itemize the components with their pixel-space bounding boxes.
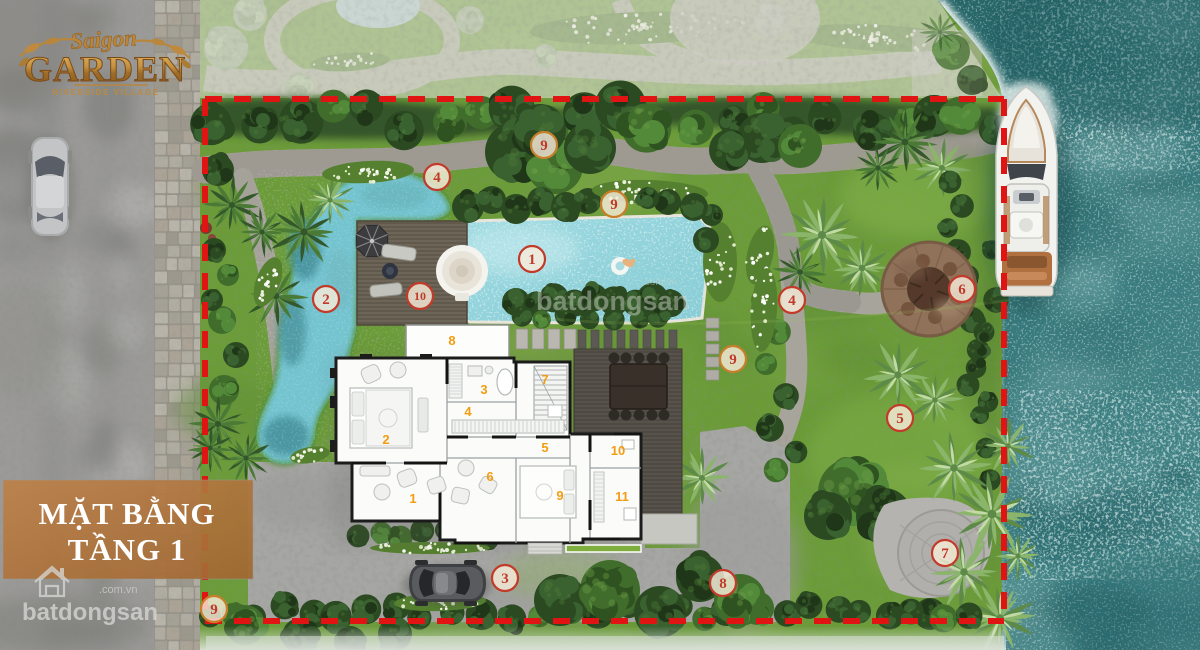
svg-text:9: 9	[210, 602, 218, 618]
svg-text:2: 2	[382, 432, 389, 447]
svg-text:2: 2	[322, 292, 330, 308]
svg-text:11: 11	[615, 489, 629, 504]
svg-text:10: 10	[611, 443, 625, 458]
svg-text:3: 3	[501, 571, 509, 587]
svg-text:1: 1	[528, 252, 536, 268]
svg-text:8: 8	[448, 333, 455, 348]
svg-text:7: 7	[541, 372, 548, 387]
svg-text:9: 9	[540, 138, 548, 154]
svg-text:GARDEN: GARDEN	[24, 49, 186, 89]
svg-text:6: 6	[486, 469, 493, 484]
svg-text:5: 5	[896, 411, 904, 427]
svg-text:9: 9	[729, 352, 737, 368]
svg-text:4: 4	[433, 170, 441, 186]
svg-text:RIVERSIDE VILLAGE: RIVERSIDE VILLAGE	[52, 88, 159, 97]
svg-text:6: 6	[958, 282, 966, 298]
svg-text:batdongsan: batdongsan	[22, 599, 158, 626]
svg-text:TẦNG 1: TẦNG 1	[68, 531, 187, 567]
svg-text:batdongsan: batdongsan	[536, 286, 689, 316]
svg-text:4: 4	[464, 404, 472, 419]
svg-text:9: 9	[610, 197, 618, 213]
svg-text:.com.vn: .com.vn	[642, 277, 677, 288]
svg-text:.com.vn: .com.vn	[99, 584, 138, 596]
svg-text:7: 7	[941, 546, 949, 562]
svg-text:5: 5	[541, 440, 548, 455]
svg-text:9: 9	[556, 488, 563, 503]
svg-text:4: 4	[788, 293, 796, 309]
svg-text:8: 8	[719, 576, 727, 592]
svg-text:10: 10	[414, 289, 426, 303]
svg-text:3: 3	[480, 382, 487, 397]
svg-text:MẶT BẰNG: MẶT BẰNG	[38, 495, 215, 531]
svg-text:1: 1	[409, 491, 416, 506]
